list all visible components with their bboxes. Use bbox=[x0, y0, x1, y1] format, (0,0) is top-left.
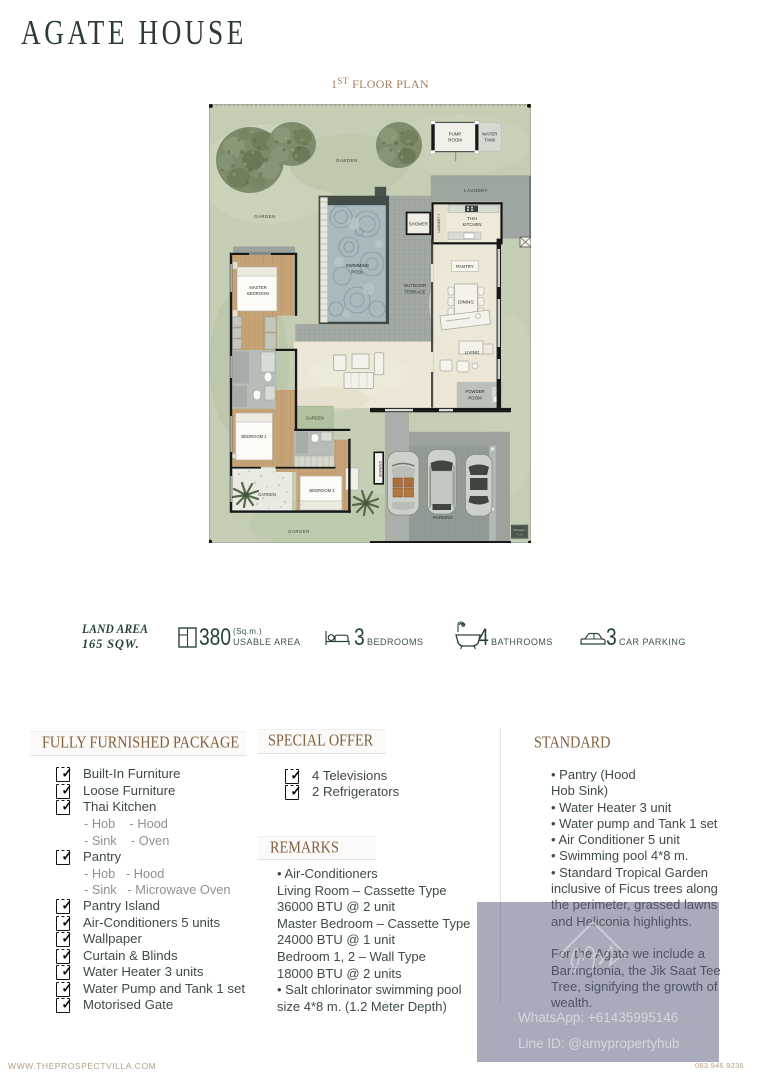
svg-text:GARDEN: GARDEN bbox=[258, 492, 276, 497]
svg-text:BEDROOM 2: BEDROOM 2 bbox=[309, 488, 335, 493]
svg-text:VILLA: VILLA bbox=[516, 533, 523, 537]
svg-text:PUMP: PUMP bbox=[449, 132, 462, 137]
svg-text:STORAGE: STORAGE bbox=[378, 461, 382, 478]
svg-text:GARDEN: GARDEN bbox=[288, 529, 310, 534]
svg-text:TANK: TANK bbox=[484, 138, 495, 143]
svg-text:MASTER: MASTER bbox=[249, 285, 266, 290]
svg-text:LIVING: LIVING bbox=[465, 350, 480, 355]
svg-text:BEDROOM 1: BEDROOM 1 bbox=[241, 434, 267, 439]
svg-text:POOL: POOL bbox=[351, 270, 364, 275]
svg-text:LAUNDRY: LAUNDRY bbox=[464, 188, 488, 193]
svg-text:DINING: DINING bbox=[458, 300, 474, 305]
svg-text:WATER: WATER bbox=[482, 132, 497, 137]
svg-text:SWIMMING: SWIMMING bbox=[346, 263, 370, 268]
svg-text:GARDEN: GARDEN bbox=[254, 214, 276, 219]
svg-text:SHOWER: SHOWER bbox=[409, 222, 428, 227]
svg-text:KITCHEN: KITCHEN bbox=[463, 222, 482, 227]
svg-text:OUTDOOR: OUTDOOR bbox=[404, 283, 426, 288]
svg-text:Prospect: Prospect bbox=[514, 528, 526, 532]
svg-text:LAUNDRY 1: LAUNDRY 1 bbox=[437, 213, 441, 232]
svg-text:ROOM: ROOM bbox=[448, 138, 462, 143]
svg-text:BEDROOM: BEDROOM bbox=[247, 291, 269, 296]
svg-text:POWDER: POWDER bbox=[465, 389, 484, 394]
svg-text:TERRACE: TERRACE bbox=[405, 290, 426, 295]
svg-text:GARDEN: GARDEN bbox=[306, 416, 324, 421]
svg-text:PARKING: PARKING bbox=[433, 515, 453, 520]
svg-text:GARDEN: GARDEN bbox=[336, 158, 358, 163]
svg-text:THAI: THAI bbox=[467, 216, 477, 221]
svg-text:ROOM: ROOM bbox=[468, 396, 482, 401]
svg-text:PANTRY: PANTRY bbox=[456, 264, 474, 269]
